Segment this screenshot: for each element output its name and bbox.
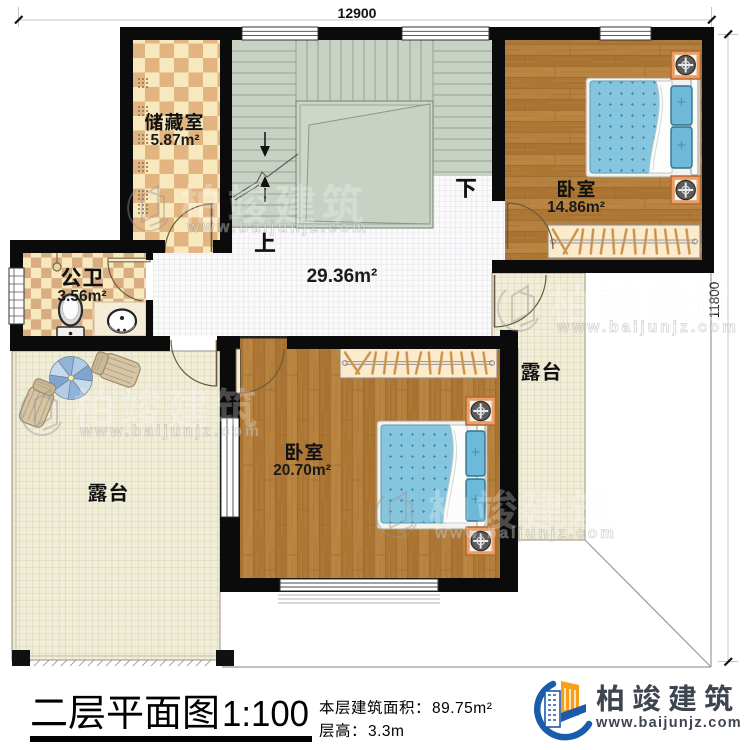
svg-text:3.3m: 3.3m <box>368 723 404 740</box>
svg-text:89.75m²: 89.75m² <box>432 700 492 717</box>
svg-text:www.baijunjz.com: www.baijunjz.com <box>595 715 742 731</box>
svg-text:1:100: 1:100 <box>222 693 309 734</box>
svg-text:29.36m²: 29.36m² <box>307 266 378 287</box>
svg-text:5.87m²: 5.87m² <box>150 132 199 149</box>
svg-text:14.86m²: 14.86m² <box>547 199 605 216</box>
svg-text:3.56m²: 3.56m² <box>57 288 106 305</box>
svg-text:20.70m²: 20.70m² <box>273 462 331 479</box>
svg-text:12900: 12900 <box>338 5 377 21</box>
